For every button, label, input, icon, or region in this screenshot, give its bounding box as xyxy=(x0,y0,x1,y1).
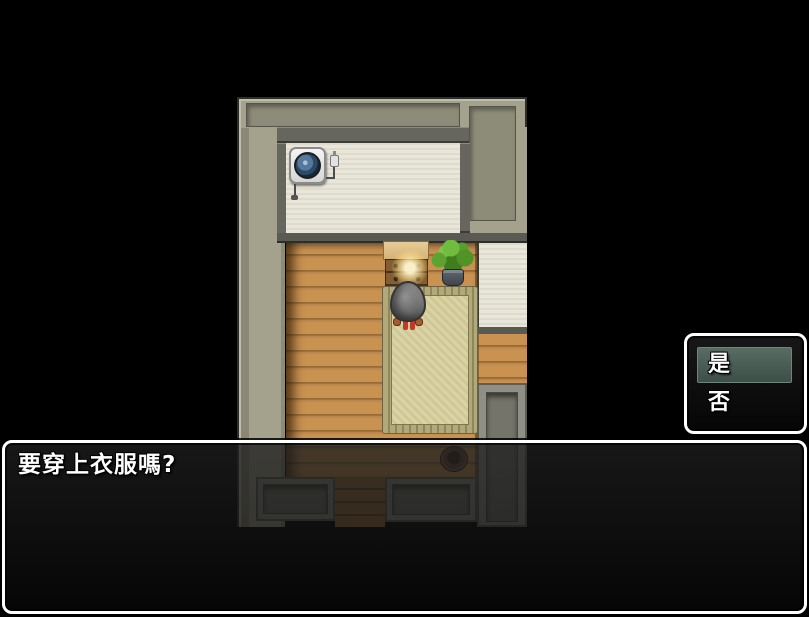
fan-cord-weight xyxy=(291,195,298,200)
choice-option-no[interactable]: 否 xyxy=(697,385,794,421)
choice-window: 是 否 xyxy=(684,333,807,434)
wall-segment-right xyxy=(477,243,527,327)
wall-trim-top xyxy=(277,127,469,143)
wall-trim-right xyxy=(460,143,470,233)
game-screen: 是 否 要穿上衣服嗎? xyxy=(0,0,809,617)
power-plug-icon xyxy=(330,155,339,167)
wall-trim-left xyxy=(277,143,286,243)
choice-option-yes[interactable]: 是 xyxy=(697,347,794,383)
plug-cord-h xyxy=(326,177,335,179)
plant-pot xyxy=(442,269,464,286)
choice-option-yes-label: 是 xyxy=(708,352,731,377)
fan-unit xyxy=(289,147,326,184)
plug-pin xyxy=(333,151,336,156)
dialogue-text: 要穿上衣服嗎? xyxy=(18,451,176,479)
fan-window-icon xyxy=(294,152,321,179)
wall-right-recess xyxy=(470,107,515,220)
dialogue-window[interactable]: 要穿上衣服嗎? xyxy=(2,440,807,614)
choice-option-no-label: 否 xyxy=(708,390,731,415)
east-passage-floor xyxy=(477,334,527,383)
player-character xyxy=(390,281,426,322)
wall-top-recess xyxy=(247,104,459,126)
trim-right-segment xyxy=(477,327,527,334)
